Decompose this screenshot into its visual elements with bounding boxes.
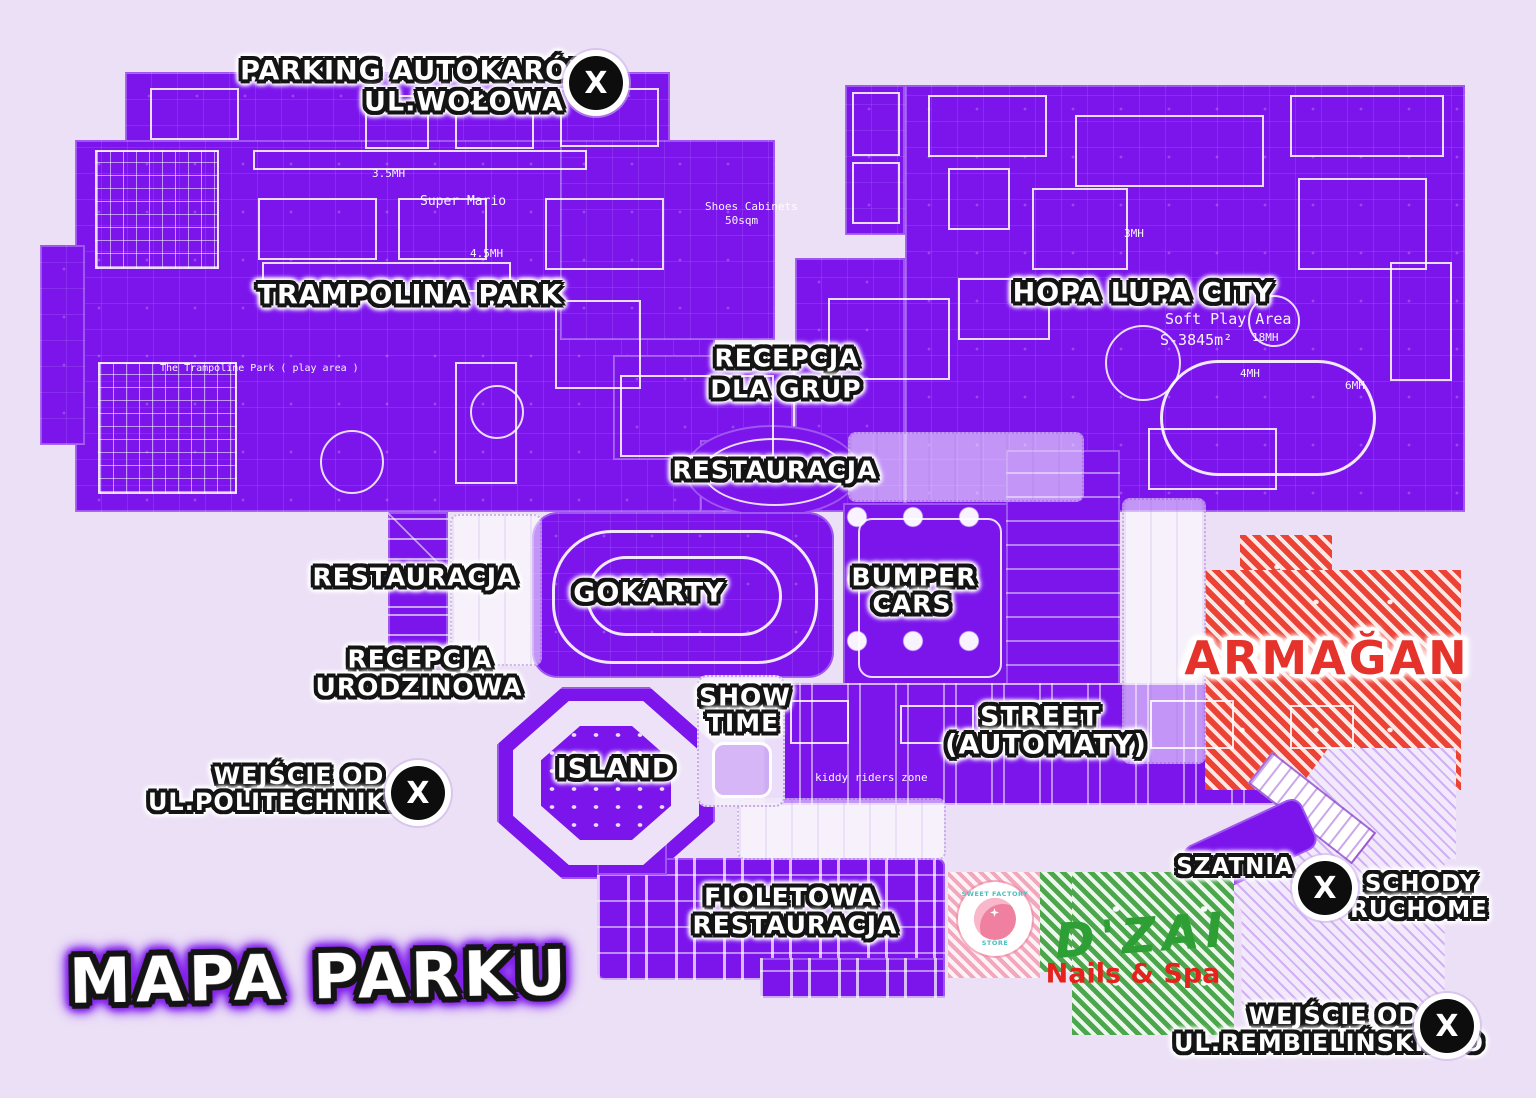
map-annotation: 4MH [1240, 367, 1260, 380]
park-map: Super Mario Shoes Cabinets 50sqm The Tra… [0, 0, 1536, 1098]
map-annotation: 3MH [1124, 227, 1144, 240]
label-recepcja-urodzinowa-line2: URODZINOWA [316, 673, 523, 702]
label-island: ISLAND [557, 754, 676, 785]
label-schody-ruchome-line2: RUCHOME [1350, 897, 1488, 923]
map-annotation: Shoes Cabinets [705, 200, 798, 213]
sweet-factory-logo-text-bottom: STORE [982, 940, 1009, 947]
sweet-factory-logo: SWEET FACTORY STORE [958, 882, 1032, 956]
label-show-time-line2: TIME [707, 709, 779, 738]
map-annotation: 3.5MH [372, 167, 405, 180]
x-marker-rembielinskiego: X [1420, 999, 1474, 1053]
label-schody-ruchome-line1: SCHODY [1365, 871, 1477, 897]
label-armagan: ARMAĞAN [1184, 631, 1469, 685]
label-fioletowa-restauracja-line2: RESTAURACJA [693, 911, 898, 940]
map-annotation: S-3845m² [1160, 331, 1232, 349]
map-annotation: 50sqm [725, 214, 758, 227]
map-annotation: Super Mario [420, 194, 506, 209]
label-szatnia: SZATNIA [1176, 854, 1294, 880]
map-annotation: Soft Play Area [1165, 310, 1291, 328]
label-wejscie-rembielinskiego-line1: WEJŚCIE OD [1249, 1002, 1420, 1030]
label-bumper-cars-line1: BUMPER [852, 563, 977, 592]
label-dzai-subtitle: Nails & Spa [1046, 959, 1221, 990]
label-restauracja-center: RESTAURACJA [673, 456, 878, 485]
map-annotation: 6MH [1345, 379, 1365, 392]
label-wejscie-politechniki-line1: WEJŚCIE OD [214, 762, 385, 790]
label-recepcja-urodzinowa-line1: RECEPCJA [347, 645, 492, 674]
map-annotation: 4.5MH [470, 247, 503, 260]
sweet-factory-logo-text-top: SWEET FACTORY [962, 891, 1029, 898]
map-annotation: 18MH [1252, 331, 1279, 344]
label-parking-autokarow-line2: UL.WOŁOWA [364, 87, 564, 118]
label-fioletowa-restauracja-line1: FIOLETOWA [704, 883, 878, 912]
x-marker-politechniki: X [391, 766, 445, 820]
label-trampolina-park: TRAMPOLINA PARK [258, 280, 563, 311]
label-restauracja-left: RESTAURACJA [313, 563, 518, 592]
label-recepcja-dla-grup-line1: RECEPCJA [714, 344, 859, 373]
label-bumper-cars-line2: CARS [873, 590, 952, 619]
map-annotation: kiddy riders zone [815, 771, 928, 784]
label-hopa-lupa-city: HOPA LUPA CITY [1013, 278, 1274, 309]
page-title: MAPA PARKU [69, 936, 572, 1018]
label-street-automaty-line2: (AUTOMATY) [945, 730, 1147, 761]
x-marker-schody: X [1298, 861, 1352, 915]
map-annotation: The Trampoline Park ( play area ) [160, 363, 359, 374]
donut-icon [974, 898, 1016, 940]
label-show-time-line1: SHOW [699, 683, 791, 712]
label-recepcja-dla-grup-line2: DLA GRUP [710, 375, 861, 404]
x-marker-parking: X [569, 56, 623, 110]
label-gokarty: GOKARTY [573, 578, 724, 609]
label-street-automaty-line1: STREET [980, 702, 1100, 733]
label-parking-autokarow-line1: PARKING AUTOKARÓW [240, 56, 600, 87]
label-wejscie-politechniki-line2: UL.POLITECHNIKI [148, 788, 396, 816]
